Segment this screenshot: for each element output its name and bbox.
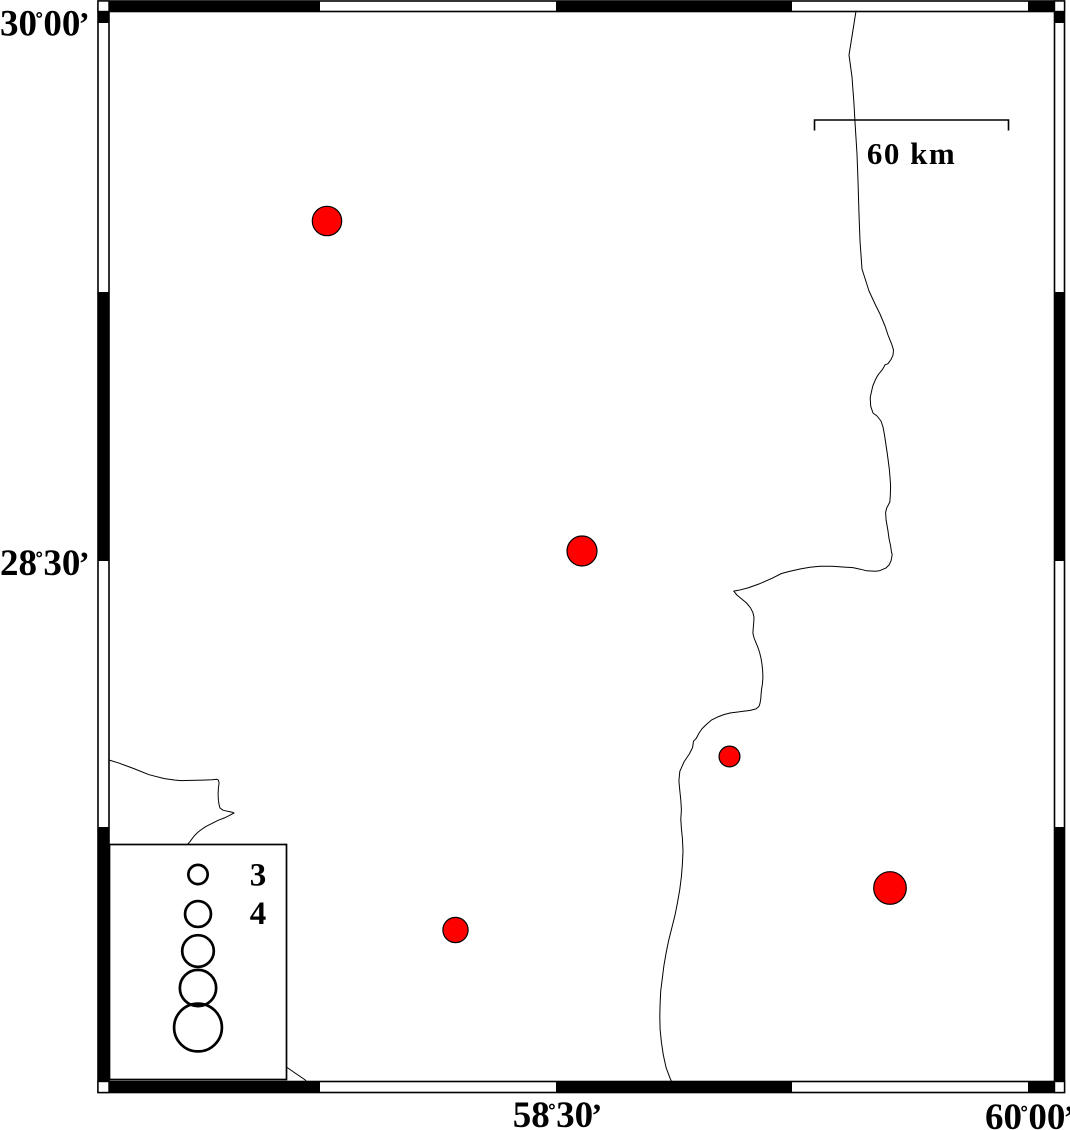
- svg-text:00: 00: [1028, 1097, 1065, 1130]
- svg-text:00: 00: [43, 4, 80, 45]
- svg-text:60: 60: [985, 1097, 1022, 1130]
- svg-text:’: ’: [1064, 1100, 1070, 1130]
- svg-text:30: 30: [556, 1095, 593, 1130]
- svg-text:’: ’: [79, 546, 90, 582]
- svg-text:30: 30: [0, 4, 37, 45]
- svg-text:3: 3: [250, 857, 267, 893]
- svg-text:’: ’: [79, 6, 90, 42]
- svg-text:60 km: 60 km: [867, 136, 956, 171]
- svg-text:’: ’: [591, 1098, 602, 1130]
- svg-text:30: 30: [43, 543, 80, 584]
- svg-text:58: 58: [513, 1095, 550, 1130]
- svg-text:4: 4: [250, 896, 267, 932]
- svg-text:28: 28: [0, 543, 37, 584]
